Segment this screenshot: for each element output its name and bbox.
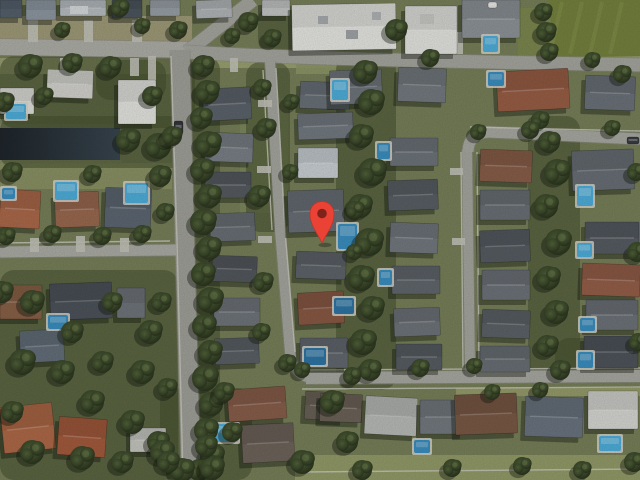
- imagery-noise-overlay: [0, 0, 640, 480]
- satellite-map-view[interactable]: [0, 0, 640, 480]
- pin-shadow: [319, 243, 332, 247]
- satellite-imagery: [0, 0, 640, 480]
- pin-inner-dot: [317, 209, 327, 219]
